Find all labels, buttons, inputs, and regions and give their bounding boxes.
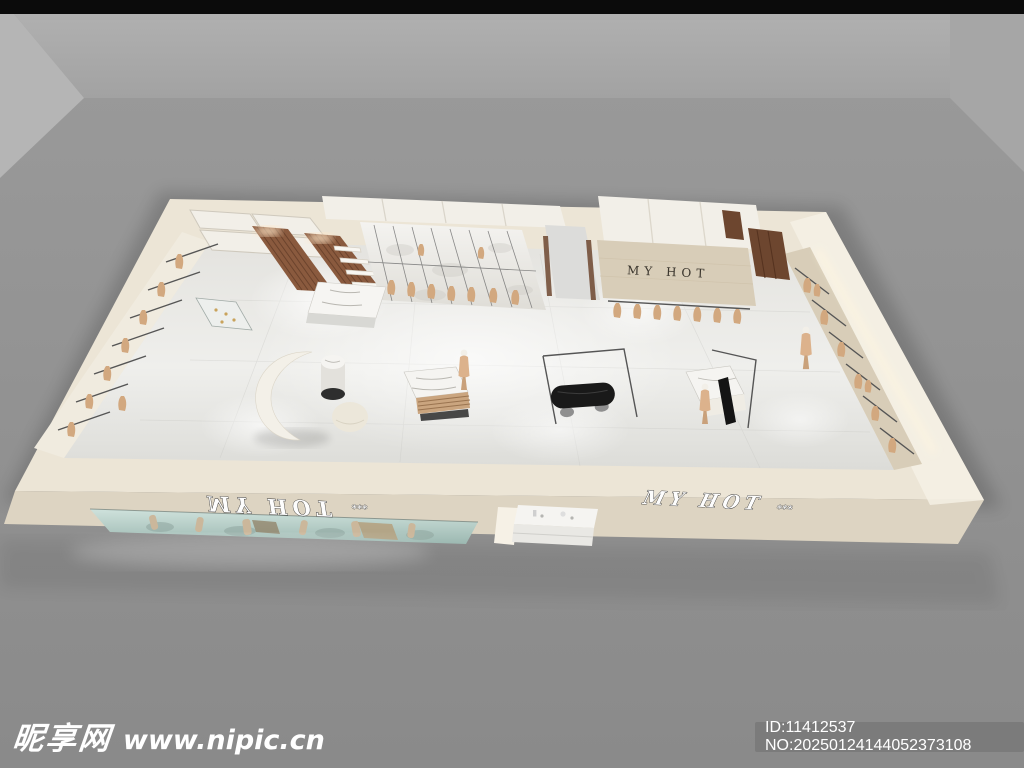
marble-display-wall — [360, 222, 546, 310]
background-back-wall — [14, 14, 950, 98]
stock-image-preview: MY HOT — [0, 0, 1024, 768]
image-id-text: ID:11412537 NO:20250124144052373108 — [765, 719, 1014, 755]
ceiling-strip — [0, 0, 1024, 14]
entry-cabinet — [512, 505, 598, 546]
marble-side-table — [321, 355, 345, 400]
image-id-badge: ID:11412537 NO:20250124144052373108 — [755, 722, 1024, 752]
display-bottle — [560, 511, 565, 516]
store-render: MY HOT — [0, 0, 1024, 768]
site-name: 昵享网 — [11, 713, 115, 758]
window-light-spill — [70, 536, 430, 568]
display-bottle — [533, 510, 536, 517]
cash-desk — [306, 282, 386, 328]
site-watermark: 昵享网 www.nipic.cn — [13, 713, 325, 758]
ottoman — [332, 402, 368, 432]
front-left-sign-suffix: *** — [352, 498, 369, 510]
store-model: MY HOT — [4, 196, 984, 568]
site-url: www.nipic.cn — [123, 725, 325, 756]
